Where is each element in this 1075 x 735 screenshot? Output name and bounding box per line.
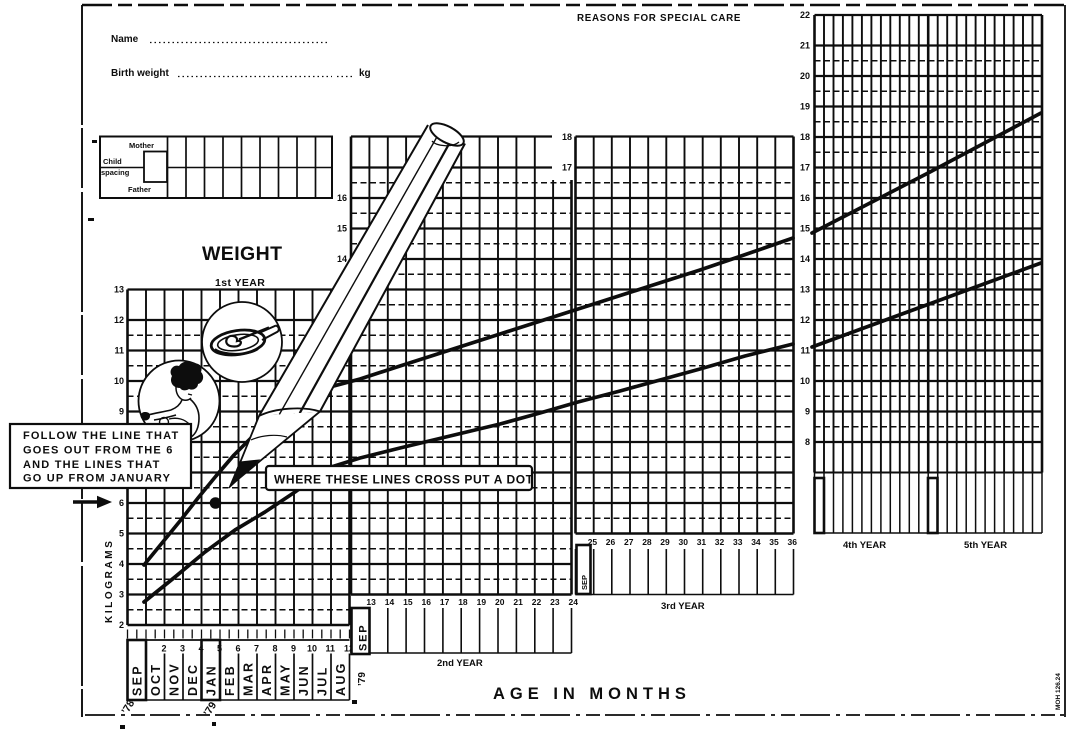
- svg-text:2nd YEAR: 2nd YEAR: [437, 658, 483, 669]
- svg-text:21: 21: [800, 41, 810, 51]
- svg-text:21: 21: [513, 597, 523, 607]
- svg-text:GO UP FROM JANUARY: GO UP FROM JANUARY: [23, 473, 171, 485]
- svg-text:18: 18: [800, 132, 810, 142]
- svg-text:11: 11: [114, 346, 124, 356]
- svg-text:Name: Name: [111, 34, 139, 45]
- svg-text:15: 15: [337, 224, 347, 234]
- svg-text:11: 11: [800, 346, 810, 356]
- svg-text:20: 20: [800, 71, 810, 81]
- svg-text:9: 9: [805, 407, 810, 417]
- svg-text:FEB: FEB: [223, 664, 237, 696]
- svg-text:33: 33: [733, 537, 743, 547]
- svg-text:17: 17: [440, 597, 450, 607]
- svg-text:31: 31: [697, 537, 707, 547]
- svg-text:’79: ’79: [357, 672, 368, 686]
- svg-text:14: 14: [337, 254, 347, 264]
- svg-text:19: 19: [800, 102, 810, 112]
- svg-text:APR: APR: [260, 663, 274, 696]
- svg-text:12: 12: [800, 315, 810, 325]
- svg-text:AGE IN MONTHS: AGE IN MONTHS: [493, 685, 691, 703]
- svg-text:2: 2: [162, 644, 167, 654]
- svg-text:20: 20: [495, 597, 505, 607]
- svg-text:MAY: MAY: [279, 662, 293, 696]
- svg-text:Father: Father: [128, 185, 151, 194]
- svg-text:spacing: spacing: [101, 168, 130, 177]
- svg-text:OCT: OCT: [149, 663, 163, 696]
- svg-text:5th YEAR: 5th YEAR: [964, 540, 1007, 551]
- svg-text:KILOGRAMS: KILOGRAMS: [104, 538, 115, 623]
- svg-text:27: 27: [624, 537, 634, 547]
- svg-text:9: 9: [291, 644, 296, 654]
- svg-text:MOH 126.24: MOH 126.24: [1055, 673, 1062, 710]
- svg-text:22: 22: [532, 597, 542, 607]
- svg-text:4th YEAR: 4th YEAR: [843, 540, 886, 551]
- svg-text:3: 3: [180, 644, 185, 654]
- svg-text:5: 5: [119, 529, 124, 539]
- svg-text:35: 35: [769, 537, 779, 547]
- svg-text:11: 11: [326, 644, 336, 654]
- svg-text:26: 26: [606, 537, 616, 547]
- svg-text:15: 15: [800, 224, 810, 234]
- svg-text:Child: Child: [103, 157, 122, 166]
- svg-text:3: 3: [119, 590, 124, 600]
- svg-text:34: 34: [751, 537, 761, 547]
- svg-text:1st YEAR: 1st YEAR: [215, 277, 265, 289]
- svg-text:8: 8: [805, 437, 810, 447]
- svg-text:16: 16: [800, 193, 810, 203]
- svg-text:16: 16: [337, 193, 347, 203]
- svg-text:9: 9: [119, 407, 124, 417]
- svg-text:kg: kg: [359, 68, 371, 79]
- svg-text:7: 7: [254, 644, 259, 654]
- svg-text:13: 13: [114, 285, 124, 295]
- svg-text:13: 13: [800, 285, 810, 295]
- svg-text:6: 6: [236, 644, 241, 654]
- svg-text:WEIGHT: WEIGHT: [202, 243, 282, 265]
- svg-text:AND THE LINES THAT: AND THE LINES THAT: [23, 459, 161, 471]
- svg-text:18: 18: [458, 597, 468, 607]
- svg-text:23: 23: [550, 597, 560, 607]
- svg-text:28: 28: [642, 537, 652, 547]
- svg-text:Birth weight: Birth weight: [111, 68, 169, 79]
- svg-text:15: 15: [403, 597, 413, 607]
- svg-text:22: 22: [800, 10, 810, 20]
- svg-text:29: 29: [660, 537, 670, 547]
- svg-text:REASONS FOR SPECIAL CARE: REASONS FOR SPECIAL CARE: [577, 13, 741, 24]
- svg-text:SEP: SEP: [580, 575, 589, 590]
- svg-text:10: 10: [800, 376, 810, 386]
- svg-text:12: 12: [114, 315, 124, 325]
- svg-text:18: 18: [562, 132, 572, 142]
- svg-text:8: 8: [273, 644, 278, 654]
- svg-text:32: 32: [715, 537, 725, 547]
- svg-text:14: 14: [800, 254, 810, 264]
- svg-text:NOV: NOV: [168, 662, 182, 696]
- svg-text:13: 13: [366, 597, 376, 607]
- svg-text:24: 24: [569, 597, 579, 607]
- svg-text:14: 14: [385, 597, 395, 607]
- svg-text:WHERE THESE LINES CROSS PUT A: WHERE THESE LINES CROSS PUT A DOT: [274, 473, 534, 487]
- svg-text:6: 6: [119, 498, 124, 508]
- svg-text:Mother: Mother: [129, 141, 154, 150]
- svg-text:10: 10: [307, 644, 317, 654]
- svg-text:16: 16: [422, 597, 432, 607]
- svg-text:FOLLOW THE LINE THAT: FOLLOW THE LINE THAT: [23, 430, 179, 442]
- svg-text:JAN: JAN: [205, 664, 219, 696]
- svg-text:JUN: JUN: [297, 664, 311, 696]
- svg-text:10: 10: [114, 376, 124, 386]
- svg-text:JUL: JUL: [316, 665, 330, 696]
- svg-text:36: 36: [788, 537, 798, 547]
- svg-text:2: 2: [119, 620, 124, 630]
- svg-text:30: 30: [679, 537, 689, 547]
- svg-text:3rd YEAR: 3rd YEAR: [661, 601, 705, 612]
- svg-text:17: 17: [800, 163, 810, 173]
- svg-text:GOES OUT FROM THE 6: GOES OUT FROM THE 6: [23, 445, 174, 457]
- svg-text:SEP: SEP: [131, 664, 145, 696]
- svg-text:17: 17: [562, 163, 572, 173]
- svg-text:MAR: MAR: [242, 661, 256, 696]
- svg-text:AUG: AUG: [334, 661, 348, 696]
- svg-text:19: 19: [477, 597, 487, 607]
- svg-text:SEP: SEP: [358, 624, 370, 651]
- svg-text:DEC: DEC: [186, 663, 200, 696]
- svg-text:4: 4: [119, 559, 124, 569]
